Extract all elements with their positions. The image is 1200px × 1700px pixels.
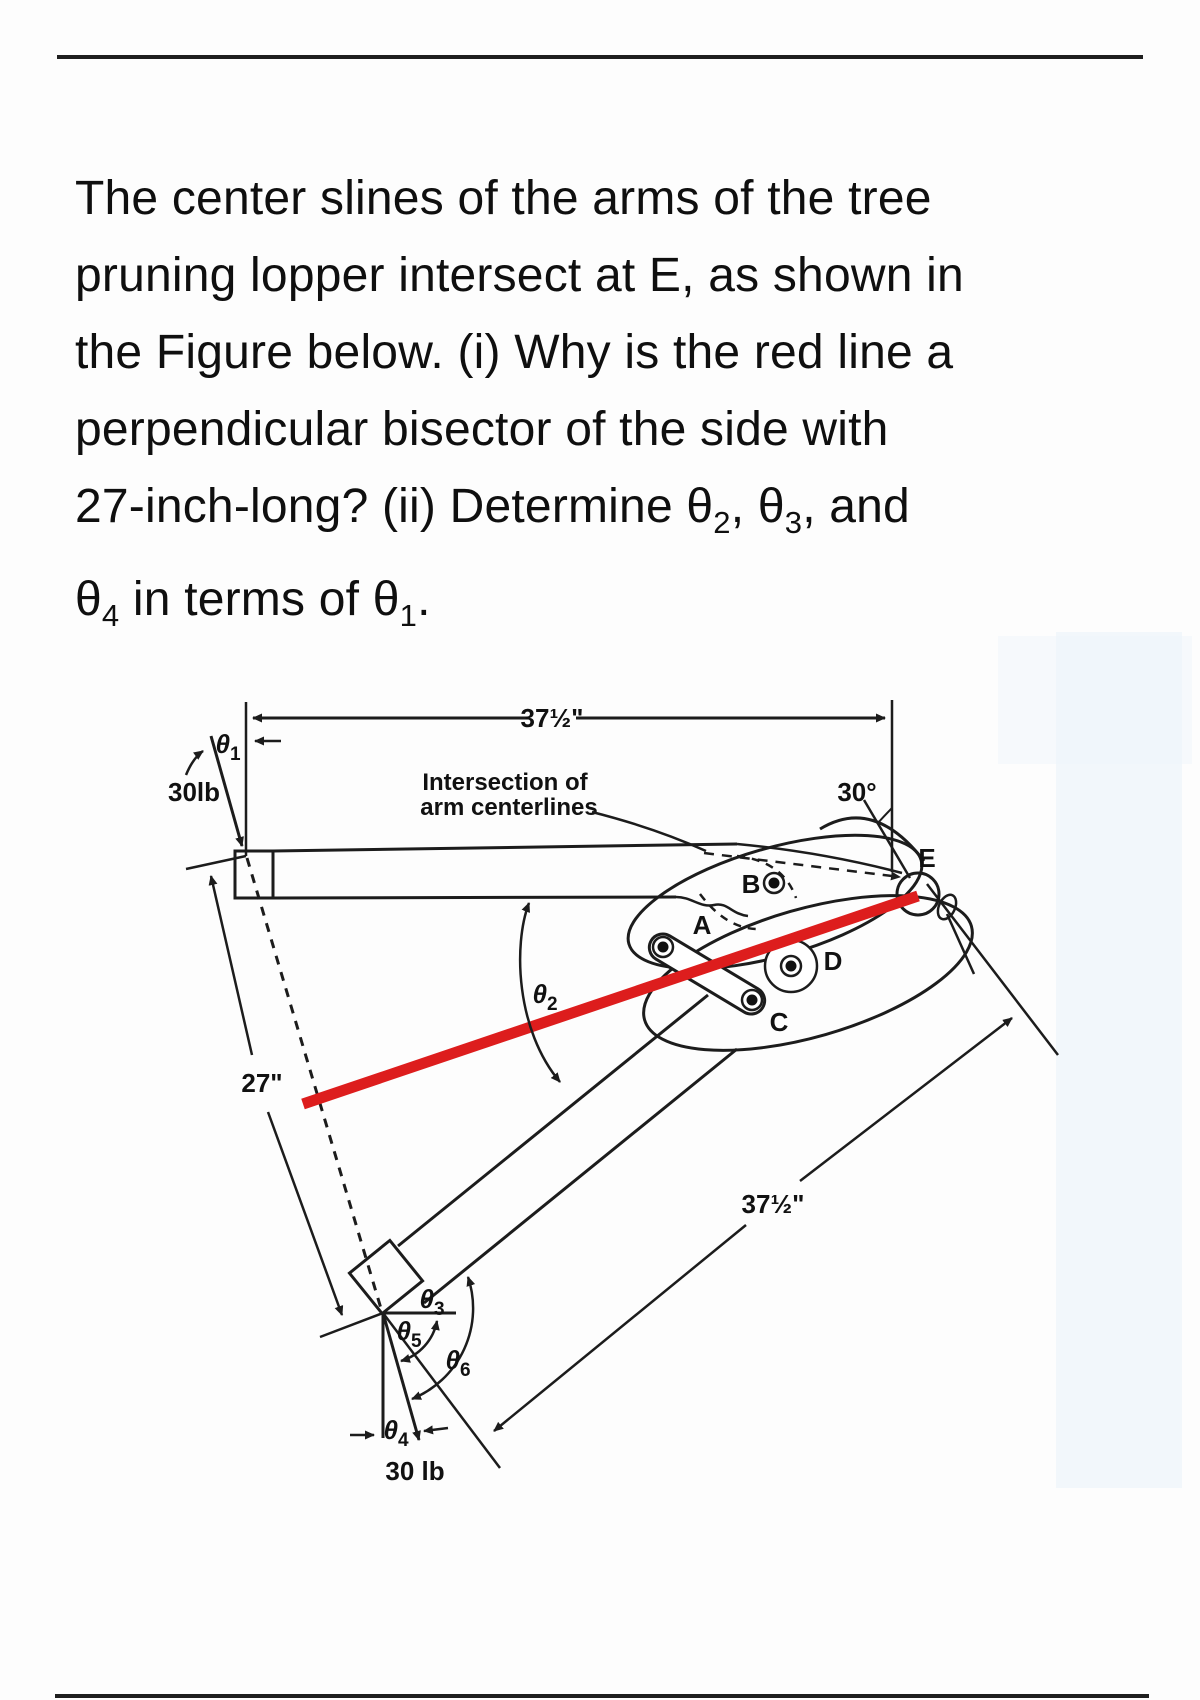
dim-bottom-low-seg bbox=[494, 1225, 746, 1431]
dim-bottom-label: 37½" bbox=[742, 1189, 805, 1219]
point-label-E: E bbox=[918, 843, 935, 873]
theta4-arrow-right bbox=[424, 1428, 448, 1431]
force-top-leader bbox=[186, 751, 203, 775]
point-extension-left bbox=[320, 1313, 383, 1337]
arm-bottom-edge bbox=[273, 897, 676, 898]
bottom-divider bbox=[55, 1694, 1149, 1698]
arm-top-edge bbox=[273, 844, 737, 851]
lower-arm-bottom-edge bbox=[424, 1049, 737, 1303]
point-label-A: A bbox=[693, 910, 712, 940]
point-label-C: C bbox=[770, 1007, 789, 1037]
note-line1: Intersection of bbox=[422, 769, 588, 796]
force-bottom-label: 30 lb bbox=[385, 1456, 444, 1486]
theta1-label: θ1 bbox=[215, 729, 241, 765]
theta4-label: θ4 bbox=[383, 1415, 409, 1451]
theta6-label: θ6 bbox=[445, 1345, 470, 1381]
theta2-label: θ2 bbox=[532, 979, 557, 1015]
extension-from-E bbox=[927, 884, 1058, 1055]
force-top-label: 30lb bbox=[168, 777, 220, 807]
point-label-B: B bbox=[742, 869, 761, 899]
pin-B bbox=[764, 873, 784, 893]
handle-cap-bottom bbox=[349, 1240, 422, 1313]
lower-arm-top-edge bbox=[398, 995, 708, 1246]
scan-tint-band-top bbox=[998, 636, 1192, 764]
lopper-figure: 37½" θ1 30lb Intersection of arm centerl… bbox=[0, 0, 1200, 1700]
point-label-D: D bbox=[824, 946, 843, 976]
corner-extension bbox=[186, 856, 246, 869]
angle30-label: 30° bbox=[837, 777, 876, 807]
dim-27-top-seg bbox=[211, 876, 252, 1055]
dim-bottom-high-seg bbox=[800, 1018, 1012, 1181]
hook-arc bbox=[820, 818, 924, 861]
dim-top-label: 37½" bbox=[521, 703, 584, 733]
note-line2: arm centerlines bbox=[420, 794, 597, 821]
dim-27-label: 27" bbox=[241, 1068, 282, 1098]
